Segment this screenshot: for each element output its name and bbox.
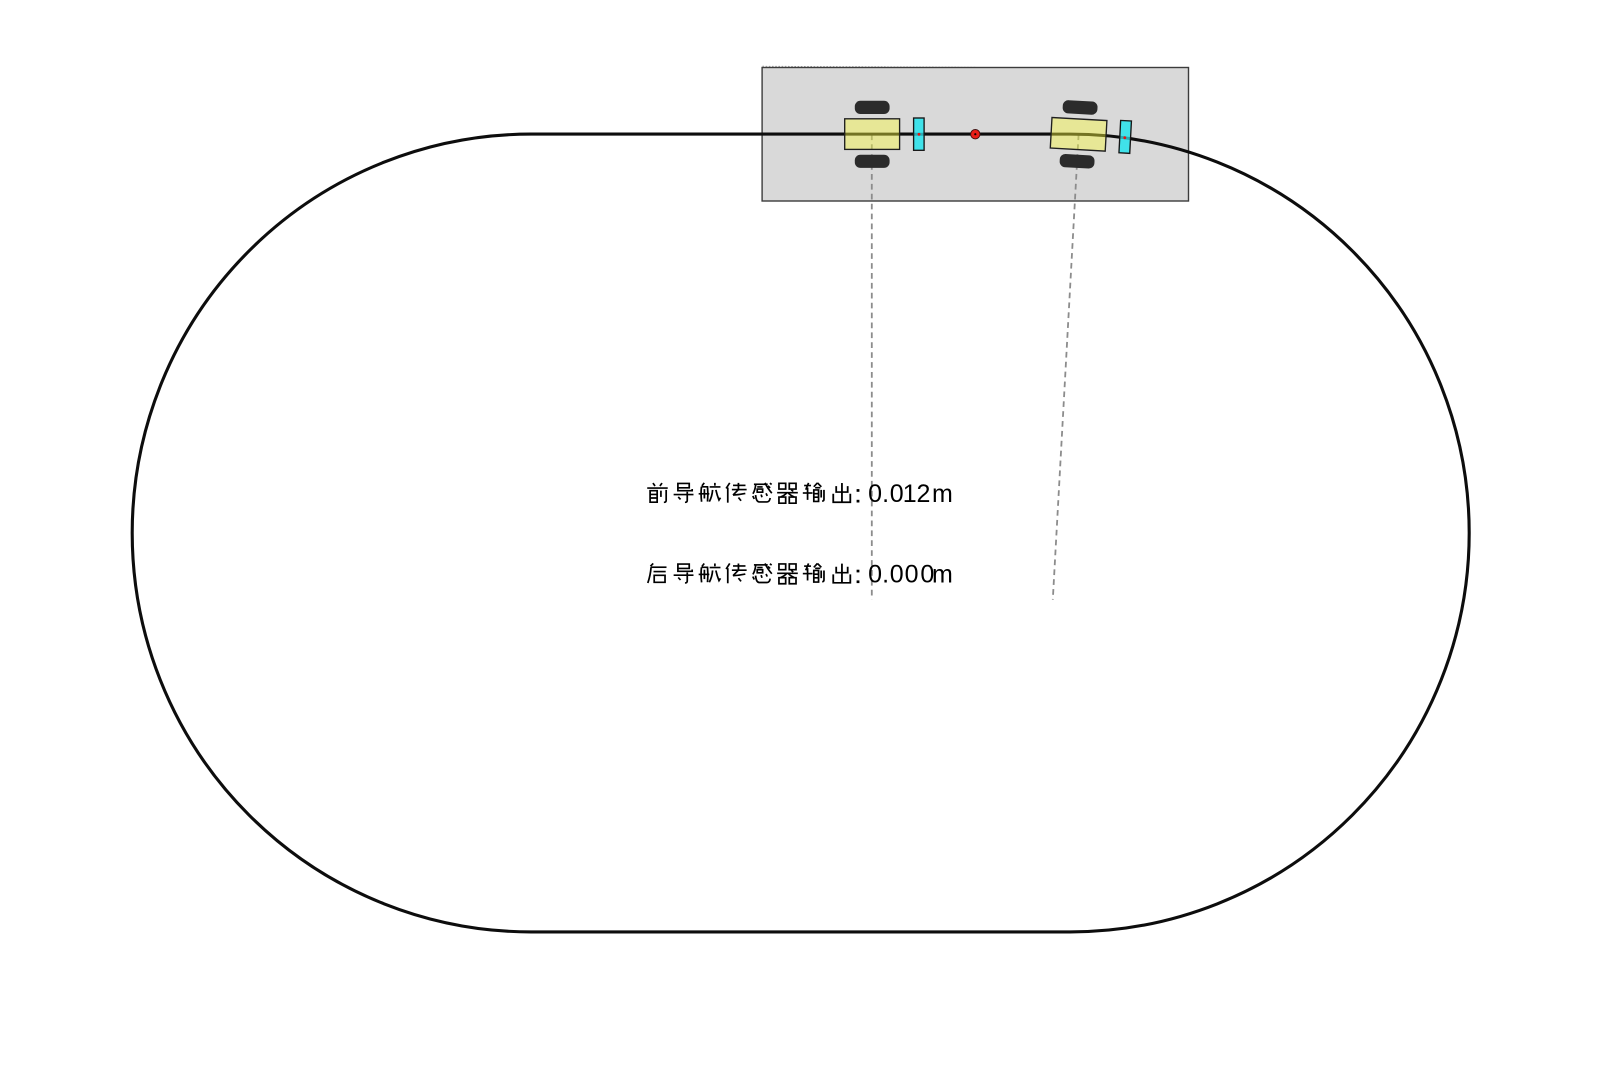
svg-text:.: .: [882, 561, 889, 589]
svg-text:0: 0: [868, 561, 882, 589]
svg-text:.: .: [882, 480, 889, 508]
svg-text:2: 2: [917, 480, 931, 508]
svg-text:m: m: [932, 561, 953, 589]
svg-text:m: m: [932, 480, 953, 508]
svg-text:0: 0: [890, 561, 904, 589]
svg-text:0: 0: [868, 480, 882, 508]
svg-text:0: 0: [905, 561, 919, 589]
svg-text:1: 1: [903, 480, 917, 508]
svg-text:0: 0: [890, 480, 904, 508]
